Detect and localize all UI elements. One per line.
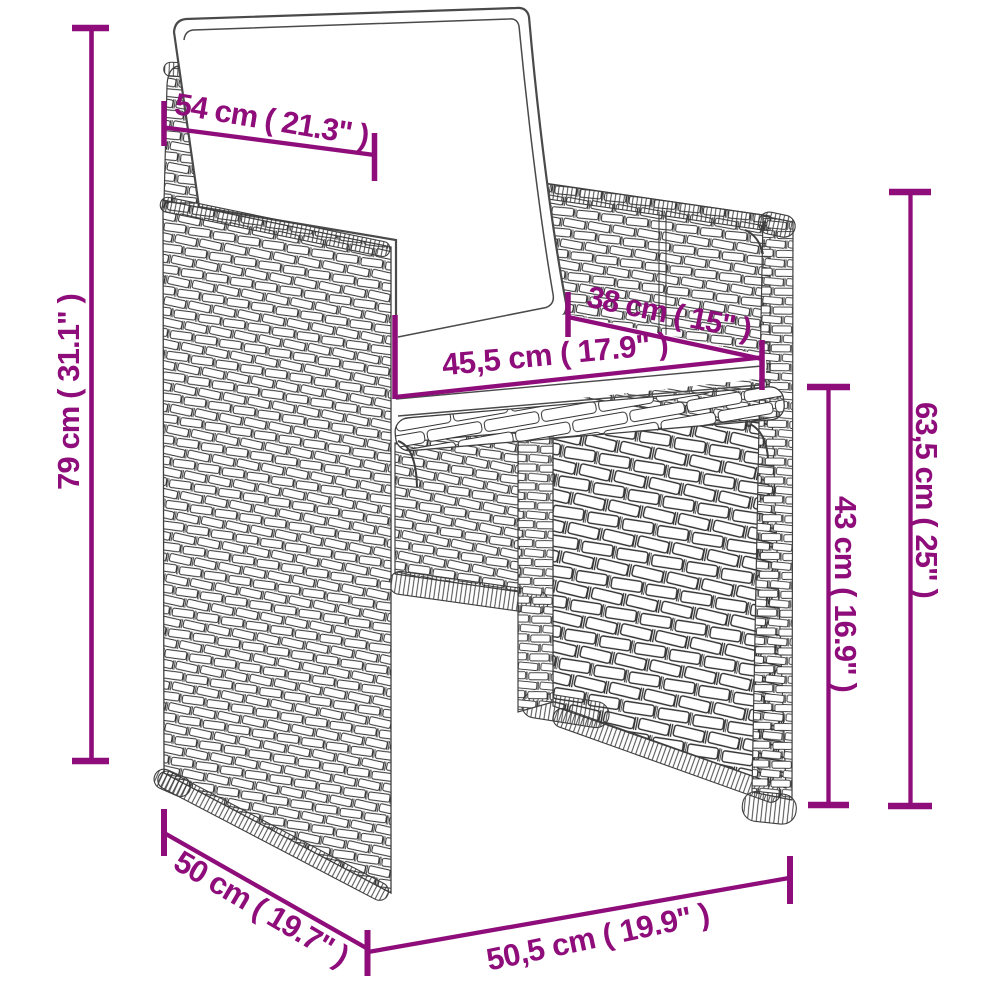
svg-text:43 cm ( 16.9" ): 43 cm ( 16.9" ) <box>828 496 863 692</box>
svg-text:63,5 cm ( 25" ): 63,5 cm ( 25" ) <box>909 402 944 598</box>
svg-text:79 cm ( 31.1" ): 79 cm ( 31.1" ) <box>51 294 86 490</box>
